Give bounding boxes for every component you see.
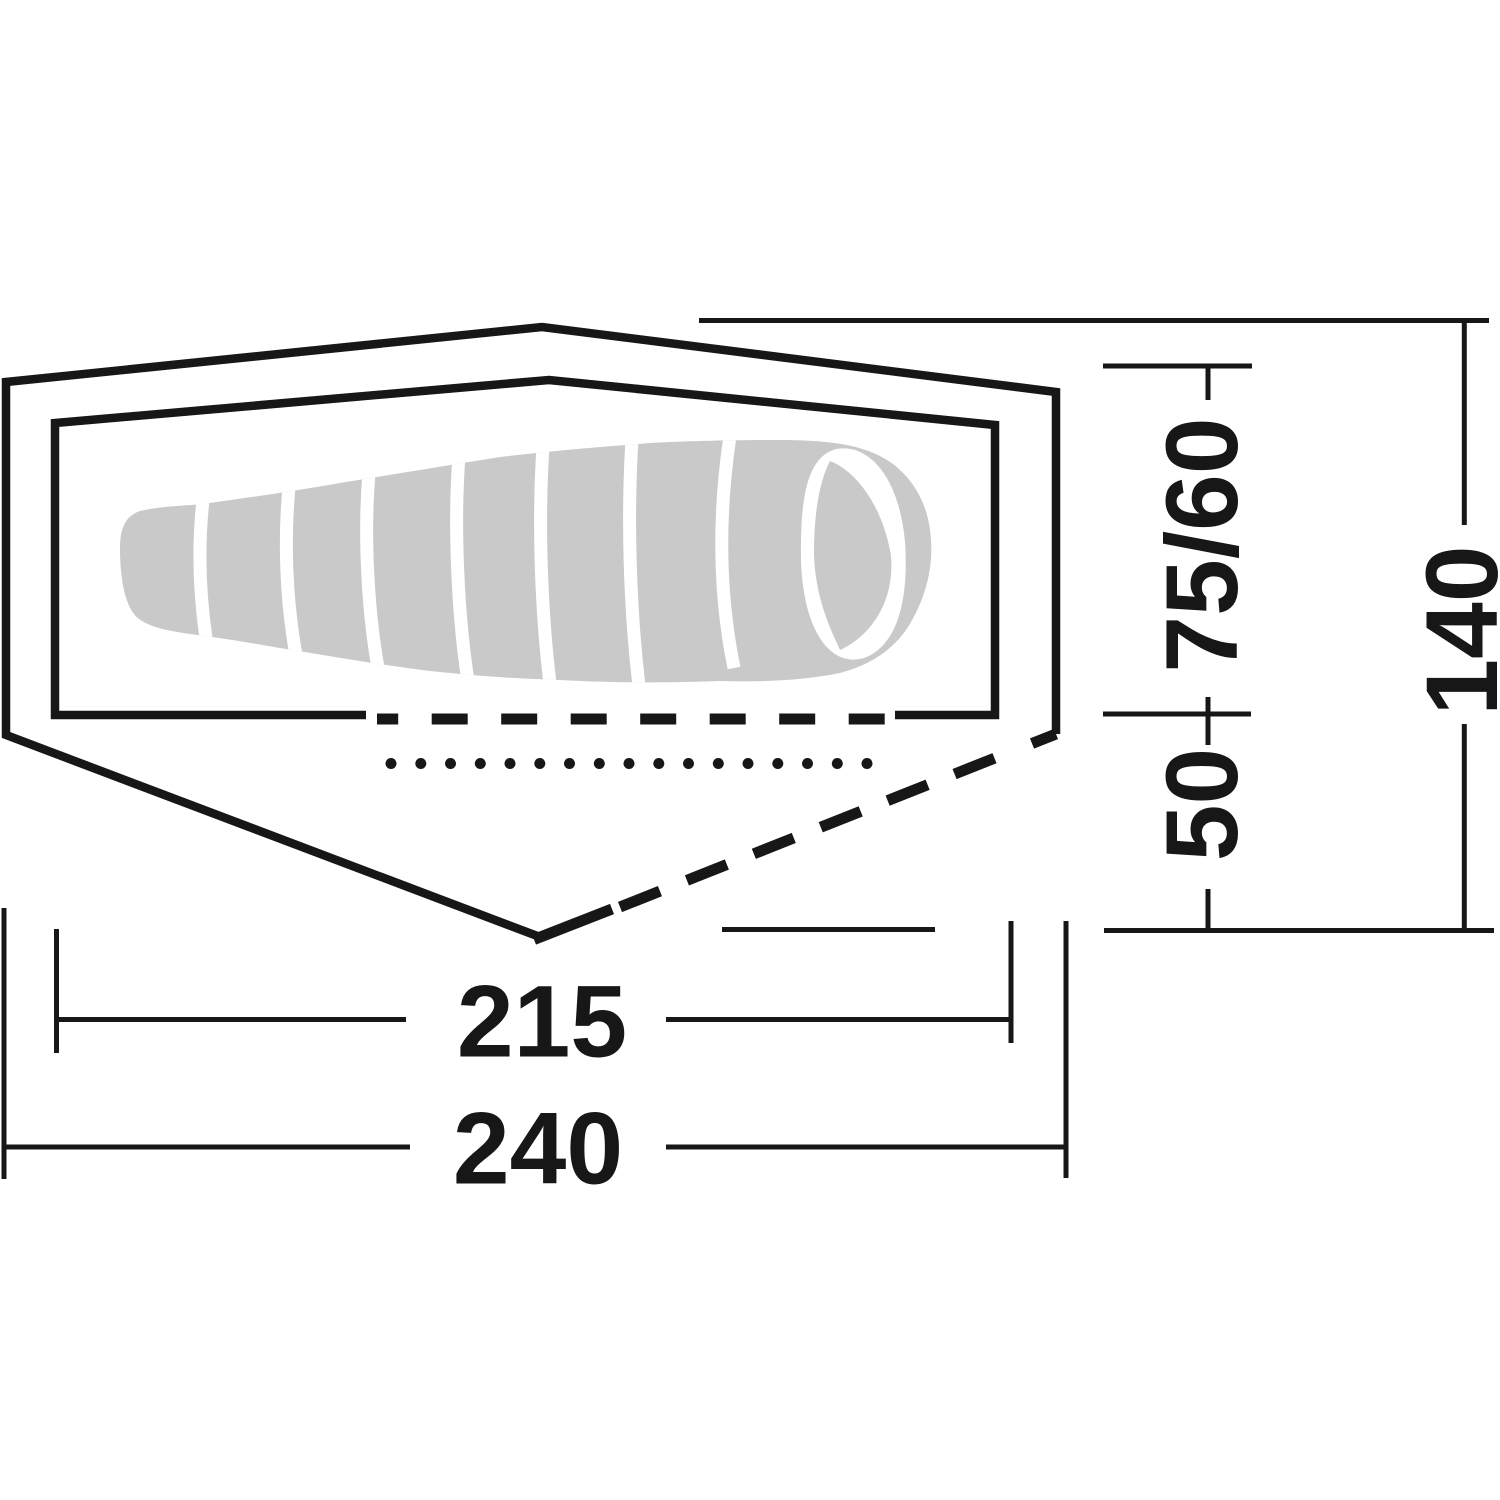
svg-text:240: 240 — [453, 1092, 623, 1206]
svg-text:140: 140 — [1405, 545, 1500, 715]
svg-text:215: 215 — [457, 965, 627, 1079]
svg-text:75/60: 75/60 — [1145, 417, 1259, 672]
svg-text:50: 50 — [1145, 748, 1259, 861]
